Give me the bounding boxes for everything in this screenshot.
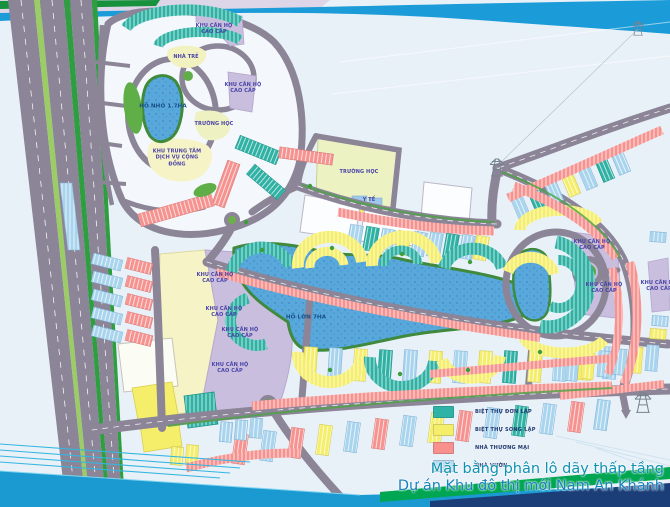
project-title: Mặt bằng phân lô dãy thấp tầng Dự án Khu… (398, 461, 664, 494)
legend-item-commercial-house: NHÀ THƯƠNG MẠI (433, 439, 536, 457)
legend-swatch-yellow (433, 424, 454, 436)
legend-swatch-teal (433, 406, 454, 418)
housing-row (650, 231, 667, 242)
apartment-zone-far-east (648, 258, 670, 312)
yellow-block (132, 382, 178, 420)
site-plan-drawing (0, 0, 670, 507)
legend-label: BIỆT THỰ ĐƠN LẬP (475, 409, 532, 415)
small-lake (143, 76, 183, 142)
legend-label: NHÀ THƯƠNG MẠI (475, 445, 529, 451)
title-line-1: Mặt bằng phân lô dãy thấp tầng (398, 461, 664, 478)
title-line-2: Dự án Khu đô thị mới Nam An Khánh (398, 478, 664, 495)
housing-row (219, 422, 233, 443)
housing-row (249, 418, 263, 439)
legend-item-semi-detached-villa: BIỆT THỰ SONG LẬP (433, 421, 536, 439)
legend-item-detached-villa: BIỆT THỰ ĐƠN LẬP (433, 403, 536, 421)
housing-row (234, 420, 248, 441)
masterplan-page: KHU CĂN HỘ CAO CẤP NHÀ TRẺ KHU CĂN HỘ CA… (0, 0, 670, 507)
housing-row (645, 345, 659, 372)
apartment-zone (228, 72, 256, 112)
legend-label: BIỆT THỰ SONG LẬP (475, 427, 536, 433)
legend-swatch-pink (433, 442, 454, 454)
housing-row (652, 315, 669, 326)
housing-row (650, 328, 667, 339)
housing-row (402, 350, 417, 383)
